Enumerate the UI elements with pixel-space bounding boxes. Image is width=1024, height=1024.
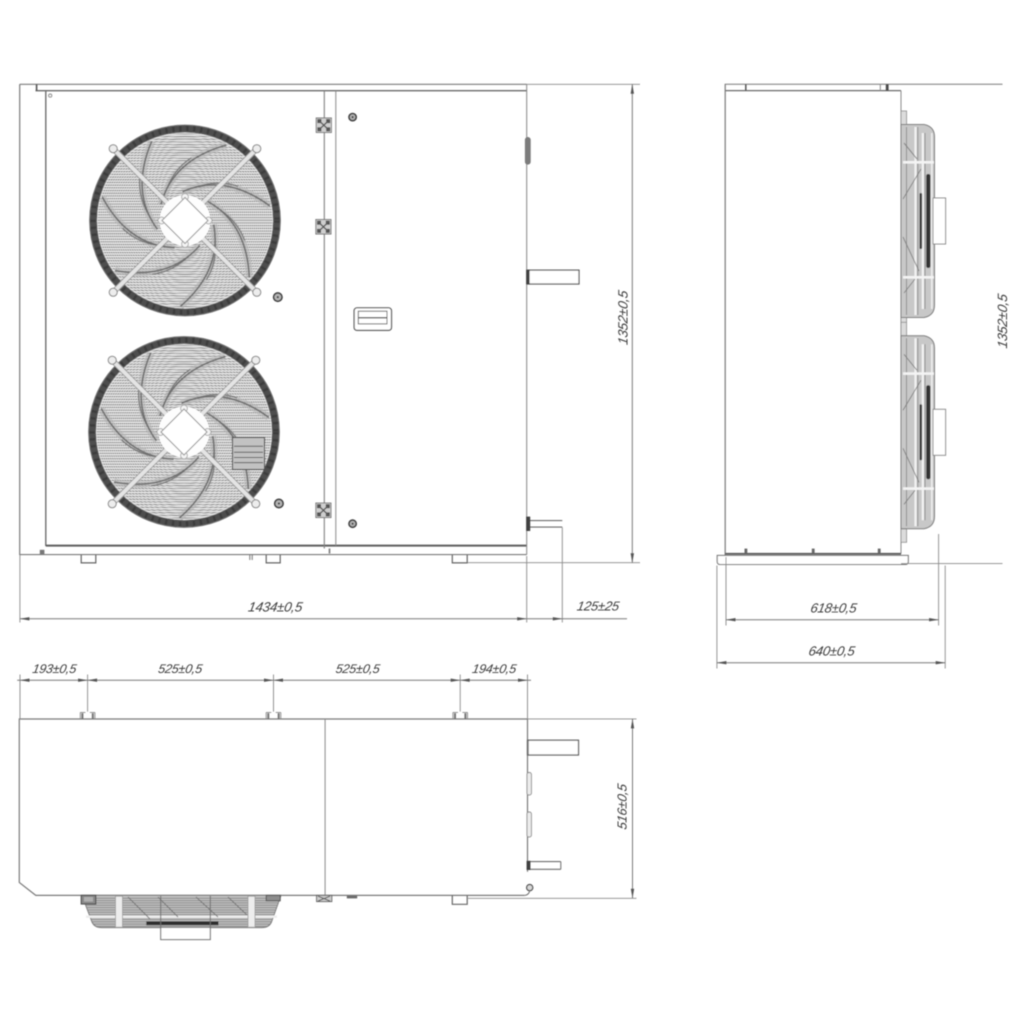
svg-text:618±0,5: 618±0,5 bbox=[809, 600, 858, 615]
svg-text:640±0,5: 640±0,5 bbox=[807, 643, 856, 658]
svg-text:525±0,5: 525±0,5 bbox=[335, 662, 382, 676]
svg-text:193±0,5: 193±0,5 bbox=[31, 662, 78, 676]
svg-text:525±0,5: 525±0,5 bbox=[157, 662, 204, 676]
svg-text:1352±0,5: 1352±0,5 bbox=[995, 292, 1010, 349]
svg-text:1352±0,5: 1352±0,5 bbox=[616, 289, 631, 346]
svg-text:194±0,5: 194±0,5 bbox=[471, 662, 518, 676]
svg-text:516±0,5: 516±0,5 bbox=[615, 782, 630, 831]
svg-text:125±25: 125±25 bbox=[576, 599, 621, 614]
svg-text:1434±0,5: 1434±0,5 bbox=[247, 600, 304, 615]
